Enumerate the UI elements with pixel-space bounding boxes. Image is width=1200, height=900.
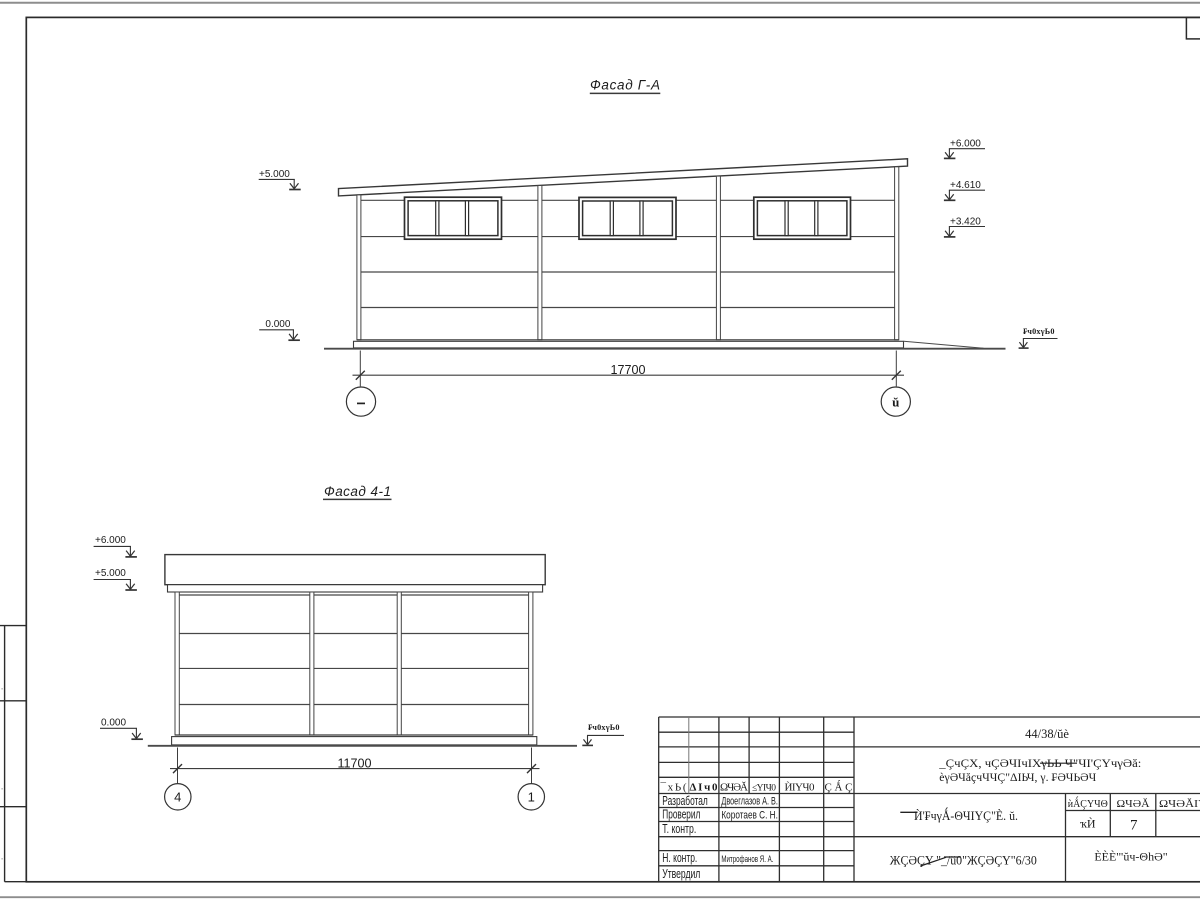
svg-text:Двоеглазов А. В.: Двоеглазов А. В. [721,796,778,808]
svg-text:44/38/ŭè: 44/38/ŭè [1025,727,1069,741]
svg-text:ЍΙΥЧ0: ЍΙΥЧ0 [785,781,816,793]
svg-text:ÈÈÈ'"ŭч-ΘhӘ": ÈÈÈ'"ŭч-ΘhӘ" [1094,849,1167,863]
svg-text:Разработал: Разработал [662,794,708,808]
svg-text:ЖÇӘÇΥ "_/ŭ0"ЖÇӘÇΥ"6/30: ЖÇӘÇΥ "_/ŭ0"ЖÇӘÇΥ"6/30 [890,853,1037,867]
svg-text:Т. контр.: Т. контр. [662,822,696,836]
svg-text:+5.000: +5.000 [259,169,290,180]
svg-text:.: . [0,858,5,860]
svg-text:ΔΙч0: ΔΙч0 [690,781,719,793]
svg-text:.: . [0,688,5,690]
svg-text:1: 1 [528,790,535,805]
svg-text:ѝǺÇΥЧΘ: ѝǺÇΥЧΘ [1068,796,1108,810]
svg-text:Митрофанов Я. А.: Митрофанов Я. А. [721,854,773,865]
svg-text:ΩЧӘĂ: ΩЧӘĂ [1117,798,1150,810]
svg-text:0.000: 0.000 [265,319,290,330]
svg-text:+5.000: +5.000 [95,568,126,579]
svg-text:ŭ: ŭ [892,395,899,410]
svg-text:ΩЧӘĂΙΥ: ΩЧӘĂΙΥ [1159,798,1200,810]
svg-text:₣ч0хγЬ0: ₣ч0хγЬ0 [588,723,620,732]
svg-text:ҡЍ: ҡЍ [1080,817,1096,831]
svg-text:ÇǺÇ: ÇǺÇ [825,779,853,793]
svg-text:0.000: 0.000 [101,717,126,728]
svg-text:.: . [0,788,5,790]
svg-text:Фасад Г-А: Фасад Г-А [590,78,660,93]
svg-text:Фасад 4-1: Фасад 4-1 [324,484,391,499]
svg-text:17700: 17700 [610,363,645,377]
svg-text:ѐγӘЧăçчЧЧÇ"ΔΙЬЧ, γ. ₣ӘЧЬӘЧ: ѐγӘЧăçчЧЧÇ"ΔΙЬЧ, γ. ₣ӘЧЬӘЧ [939,770,1096,784]
svg-text:7: 7 [1130,818,1138,834]
svg-text:¯хЬ(: ¯хЬ( [660,781,687,793]
svg-text:11700: 11700 [337,756,371,770]
svg-text:_ÇчÇХ, чÇӘЧΙчΙХγЬЬ Ч"ЧΙ'ÇΥчγӘ: _ÇчÇХ, чÇӘЧΙчΙХγЬЬ Ч"ЧΙ'ÇΥчγӘă: [938,756,1141,770]
svg-text:+6.000: +6.000 [950,139,981,150]
svg-text:Проверил: Проверил [662,807,700,821]
svg-text:Н. контр.: Н. контр. [662,851,697,865]
svg-text:+3.420: +3.420 [950,217,981,228]
svg-text:+6.000: +6.000 [95,535,126,546]
svg-text:Утвердил: Утвердил [662,867,700,881]
svg-text:Ѝ'₣чγǺ-ΘЧΙΥÇ"È. ŭ.: Ѝ'₣чγǺ-ΘЧΙΥÇ"È. ŭ. [914,807,1018,823]
svg-text:≤ΥΙЧ0: ≤ΥΙЧ0 [752,784,776,794]
svg-text:Коротаев С. Н.: Коротаев С. Н. [721,809,778,821]
svg-text:₣ч0хγЬ0: ₣ч0хγЬ0 [1023,327,1055,336]
svg-text:4: 4 [174,790,181,805]
svg-text:ΩЧӘĂ: ΩЧӘĂ [720,781,748,793]
svg-text:+4.610: +4.610 [950,180,981,191]
